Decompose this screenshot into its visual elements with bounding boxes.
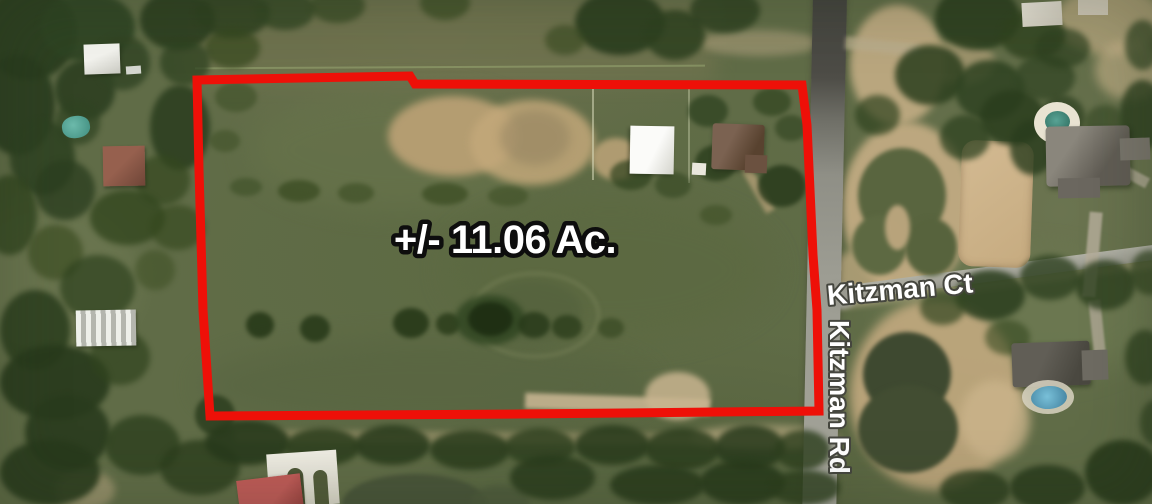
terrain-layer — [0, 0, 1152, 504]
road-junction — [824, 283, 858, 309]
house-red-roof — [236, 473, 304, 504]
tree-cluster — [195, 395, 235, 435]
pond-water — [905, 218, 957, 276]
tree-cluster — [545, 25, 585, 55]
tree-cluster — [0, 440, 100, 504]
tree-cluster — [246, 312, 274, 338]
house-right-top-wing — [1120, 137, 1151, 160]
tree-cluster — [430, 430, 510, 470]
tree-cluster — [150, 205, 205, 250]
tree-cluster — [1125, 20, 1152, 70]
tree-cluster — [35, 160, 95, 220]
tree-cluster — [855, 95, 900, 135]
tree-cluster — [355, 425, 430, 465]
dirt-patch — [645, 372, 710, 420]
sand-bank — [885, 205, 910, 250]
house-parcel-wing — [745, 155, 768, 174]
barn-left — [76, 309, 137, 346]
dirt-patch — [700, 30, 820, 56]
tree-cluster — [1035, 28, 1090, 68]
tree-cluster — [610, 465, 705, 504]
tree-cluster — [775, 430, 830, 470]
tree-cluster — [210, 130, 240, 152]
building-white — [1078, 0, 1108, 15]
building-white — [83, 43, 120, 74]
tree-cluster — [205, 28, 260, 68]
tree-cluster — [955, 270, 1025, 320]
fence-line — [592, 88, 594, 180]
tree-cluster — [338, 183, 374, 203]
dirt-patch — [500, 110, 570, 165]
tree-cluster — [700, 205, 732, 225]
tree-cluster — [215, 82, 257, 112]
house-left — [103, 146, 146, 187]
tree-cluster — [1085, 440, 1152, 504]
building-white — [1021, 1, 1062, 27]
tree-cluster — [920, 290, 965, 325]
tree-cluster — [510, 455, 595, 500]
patio-notch — [313, 470, 329, 504]
vehicle — [126, 65, 142, 74]
tree-cluster — [135, 250, 175, 290]
tree-cluster — [552, 315, 582, 339]
barn-parcel — [630, 126, 675, 175]
tree-cluster — [518, 312, 550, 338]
tree-cluster — [1075, 260, 1135, 310]
tree-cluster — [1140, 400, 1152, 445]
tree-cluster — [1020, 255, 1080, 300]
tree-cluster — [230, 178, 262, 196]
kitzman-rd-road — [802, 0, 847, 504]
tree-cluster — [940, 115, 990, 160]
tree-cluster — [688, 95, 728, 127]
tree-cluster — [393, 308, 429, 338]
tree-cluster — [300, 315, 330, 342]
tree-cluster — [1125, 330, 1152, 385]
tree-cluster — [575, 425, 650, 465]
tree-cluster — [1010, 465, 1085, 504]
pond-water — [858, 385, 958, 473]
tree-cluster — [655, 172, 691, 198]
tree-cluster — [160, 40, 210, 85]
tree-cluster — [598, 318, 624, 338]
tree-cluster — [775, 115, 807, 141]
tree-cluster — [753, 88, 791, 116]
shed-small — [692, 163, 707, 176]
tree-cluster — [488, 186, 528, 206]
tree-cluster — [468, 302, 513, 336]
tree-cluster — [940, 470, 1010, 504]
house-right-top-wing — [1058, 178, 1100, 199]
sand-bank — [960, 380, 1030, 460]
tree-cluster — [770, 470, 840, 504]
tree-cluster — [422, 183, 468, 205]
tree-cluster — [278, 180, 320, 202]
field-patch — [200, 340, 650, 430]
tree-cluster — [895, 45, 965, 105]
tree-cluster — [645, 428, 720, 470]
house-right-bottom-wing — [1081, 350, 1108, 381]
aerial-photo: +/- 11.06 Ac. Kitzman Ct Kitzman Rd — [0, 0, 1152, 504]
